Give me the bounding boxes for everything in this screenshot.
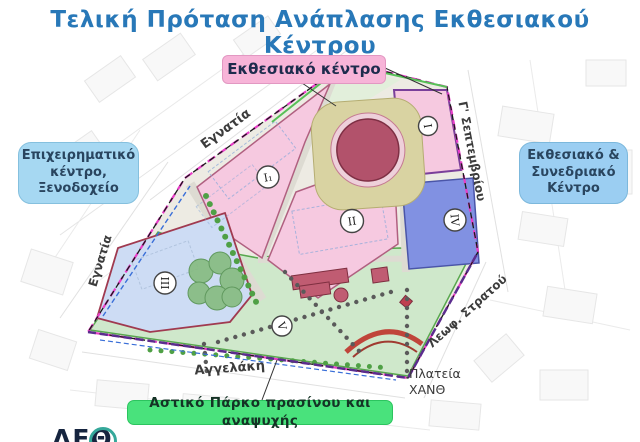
svg-text:ΙΙΙ: ΙΙΙ — [158, 276, 171, 289]
zone-badge-i: Ι — [419, 117, 438, 136]
zone-badge-ii: ΙΙ — [341, 210, 364, 233]
plateia-xanth-label: Πλατεία ΧΑΝΘ — [409, 366, 461, 399]
zone-badge-i1: Ι₁ — [257, 166, 279, 188]
site-plan-page: Ι₁ ΙΙ ΙΙΙ ΙV V Ι Εγνατία Εγνατία Γ' Σεπτ… — [0, 0, 640, 442]
svg-text:ΙΙ: ΙΙ — [347, 214, 357, 228]
page-title: Τελική Πρόταση Ανάπλασης Εκθεσιακού Κέντ… — [0, 7, 640, 59]
callout-business-center-hotel: Επιχειρηματικό κέντρο, Ξενοδοχείο — [18, 142, 139, 204]
stadium-block — [310, 96, 427, 211]
svg-text:ΙV: ΙV — [447, 213, 461, 227]
callout-exhibition-conference-center: Εκθεσιακό & Συνεδριακό Κέντρο — [519, 142, 628, 204]
zone-badge-iii: ΙΙΙ — [154, 272, 176, 294]
zone-badge-iv: ΙV — [444, 209, 466, 231]
callout-exhibition-center: Εκθεσιακό κέντρο — [222, 55, 386, 84]
zone-badge-v: V — [272, 316, 292, 336]
callout-urban-park: Αστικό Πάρκο πρασίνου και αναψυχής — [127, 400, 393, 425]
